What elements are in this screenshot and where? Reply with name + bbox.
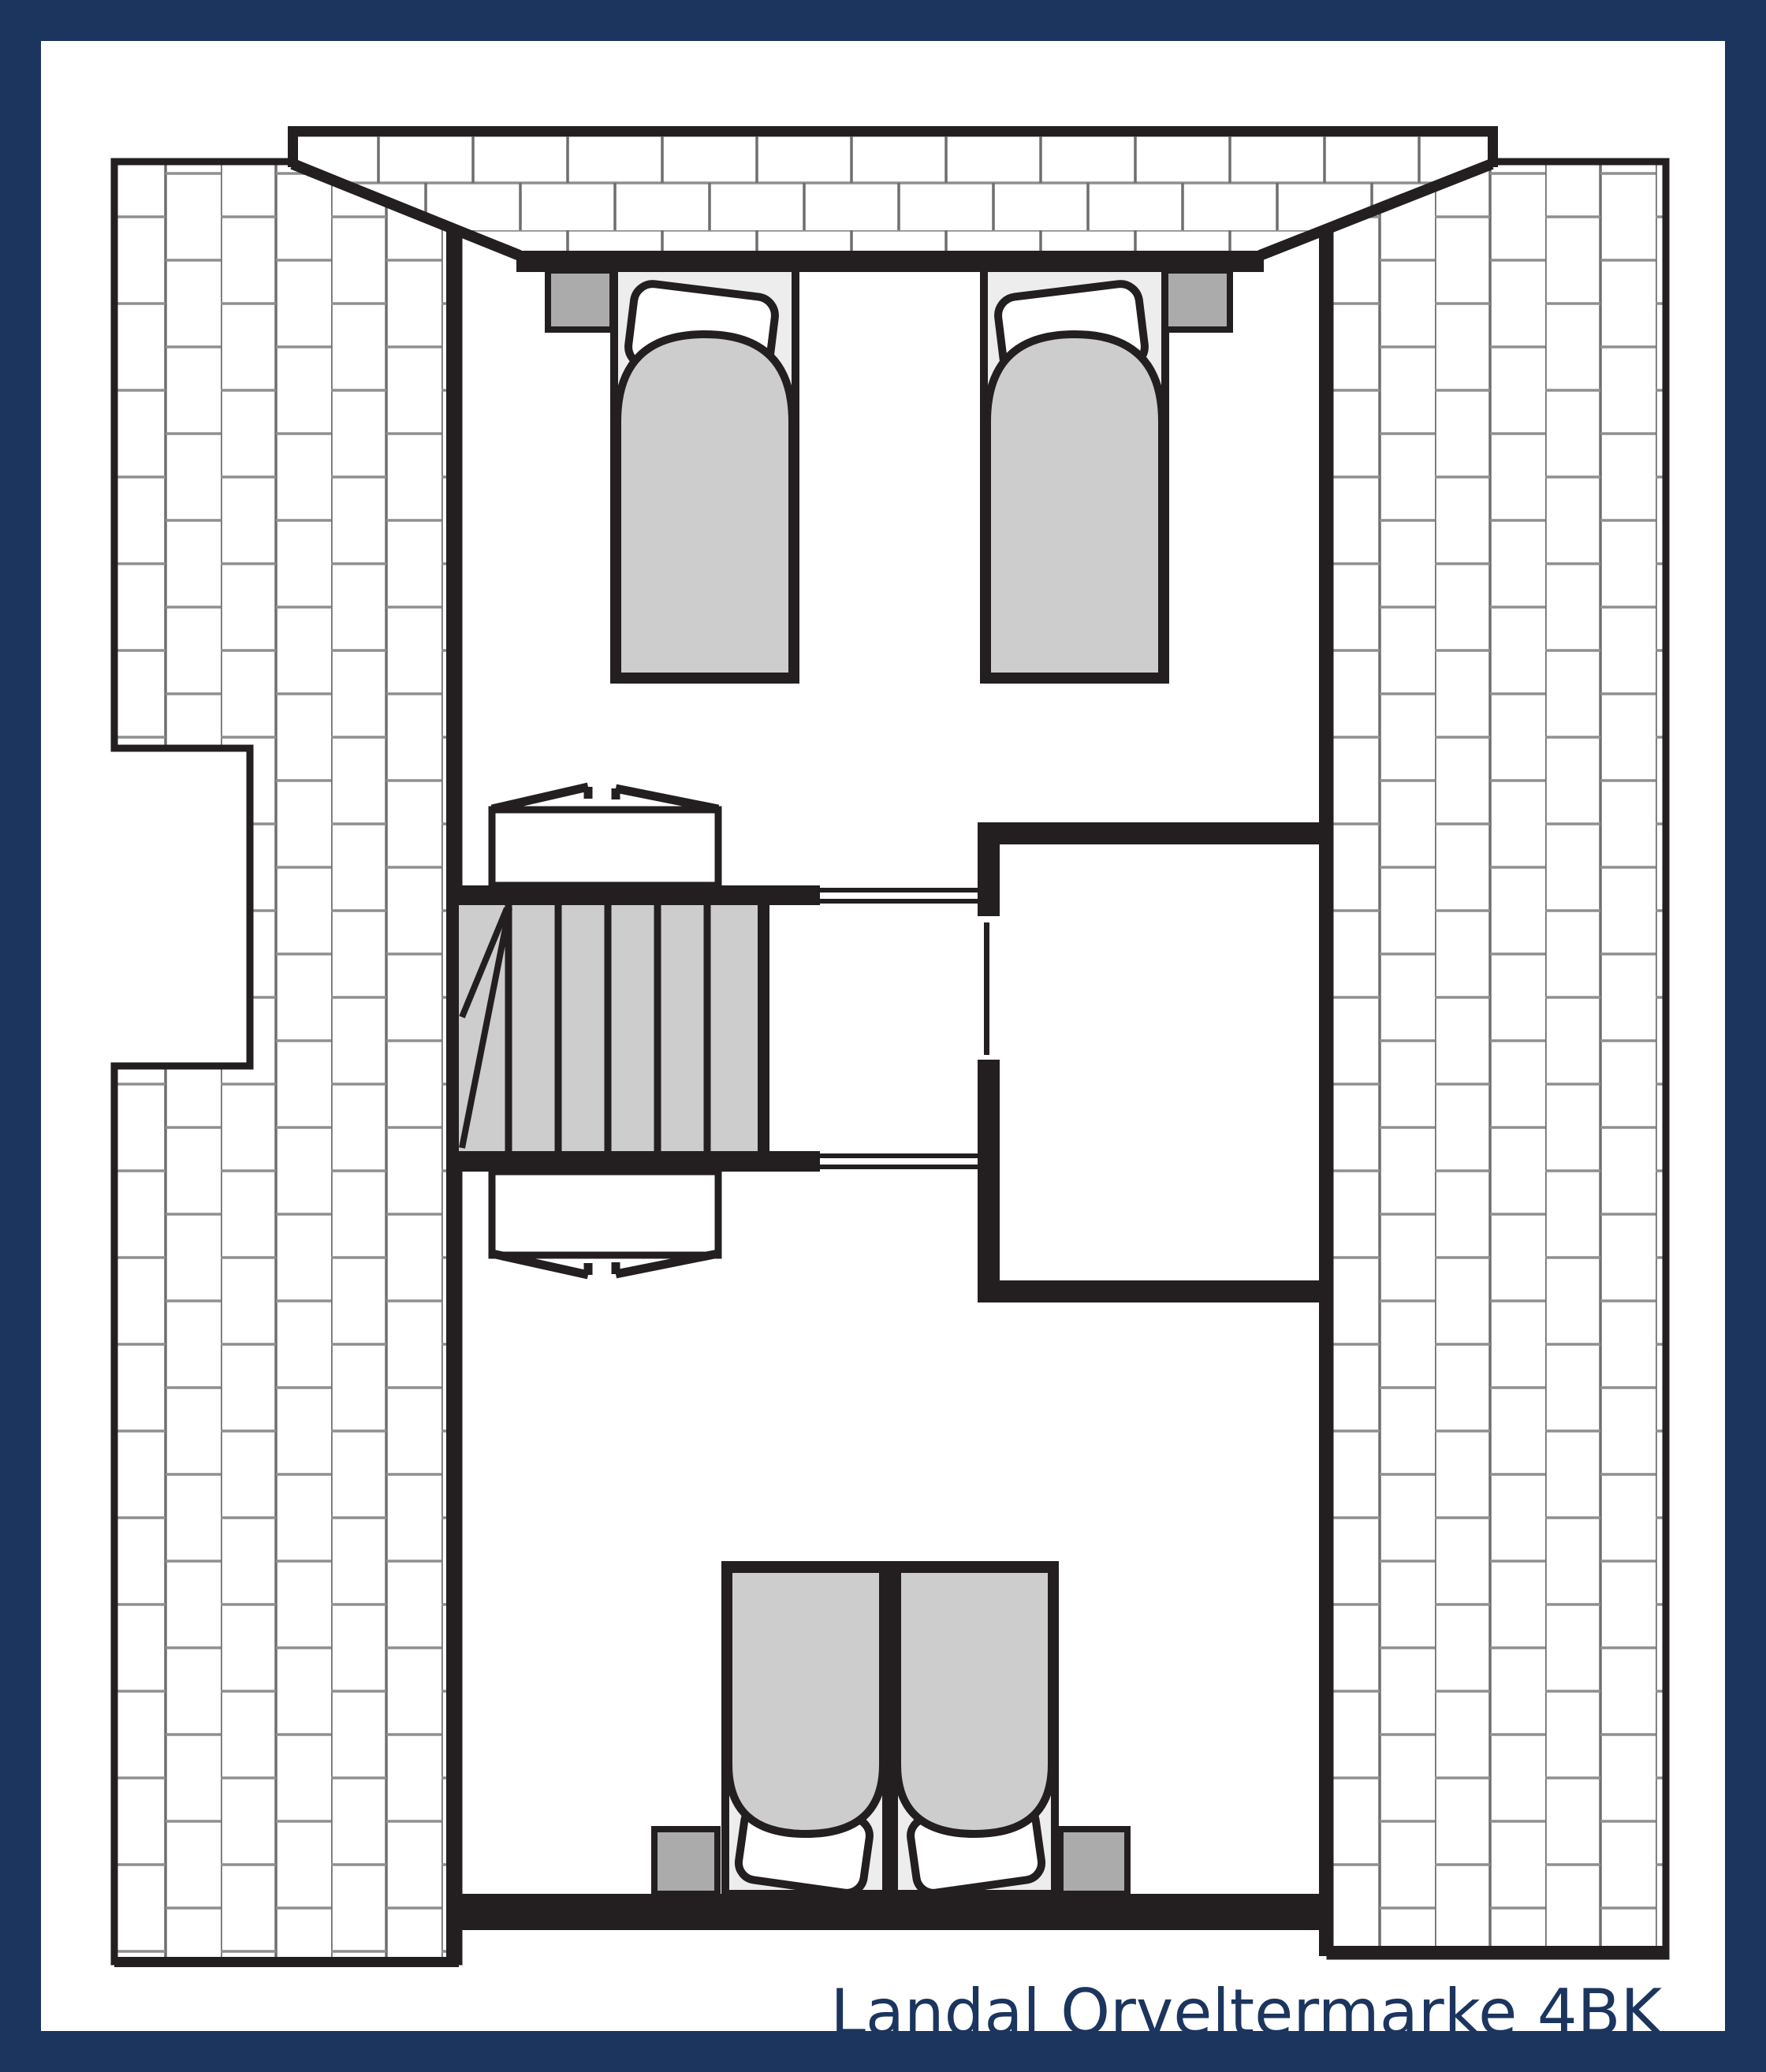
single-bed-right — [984, 268, 1165, 680]
room-left-wall-upper — [978, 822, 1000, 916]
duvet-left — [728, 1569, 883, 1834]
double-bed — [725, 1565, 1055, 1895]
nightstand-bottom-right — [1060, 1829, 1127, 1894]
duvet-right — [897, 1569, 1052, 1834]
sliding-door-leaf — [984, 922, 989, 1055]
left-wall-bottom-edge — [114, 1957, 459, 1967]
nightstand-top-left — [548, 270, 613, 330]
floor-plan-page: Landal Orveltermarke 4BK — [0, 0, 1766, 2072]
storage-room — [978, 822, 1330, 1302]
single-bed-left — [614, 268, 795, 680]
marker-box — [492, 1172, 718, 1255]
bottom-bedroom-wall — [459, 1894, 1330, 1930]
nightstand-top-right — [1165, 270, 1230, 330]
landing-railing — [820, 890, 978, 1167]
duvet — [617, 334, 792, 676]
gable-band-top-edge — [288, 126, 1498, 136]
duvet — [987, 334, 1162, 676]
marker-box — [492, 810, 718, 885]
staircase — [459, 885, 978, 1172]
stair-stringer — [758, 885, 769, 1172]
nightstand-bottom-left — [654, 1829, 717, 1894]
bedroom-bottom — [654, 1565, 1127, 1895]
sloped-ceiling-marker-lower — [492, 1172, 718, 1275]
right-wall-bottom-edge — [1330, 1946, 1666, 1956]
masonry-side-wall-left — [114, 162, 459, 1962]
masonry-side-wall-right — [1330, 162, 1666, 1956]
room-top-wall — [978, 822, 1330, 844]
bedroom-top — [548, 268, 1230, 680]
right-inner-wall — [1319, 228, 1330, 1956]
floor-plan-canvas: Landal Orveltermarke 4BK — [0, 0, 1766, 2072]
room-left-wall-lower — [978, 1060, 1000, 1302]
sloped-ceiling-marker-upper — [492, 787, 718, 885]
room-bottom-wall — [978, 1280, 1330, 1302]
marker-chevron — [492, 787, 718, 809]
left-inner-wall — [446, 227, 459, 1967]
